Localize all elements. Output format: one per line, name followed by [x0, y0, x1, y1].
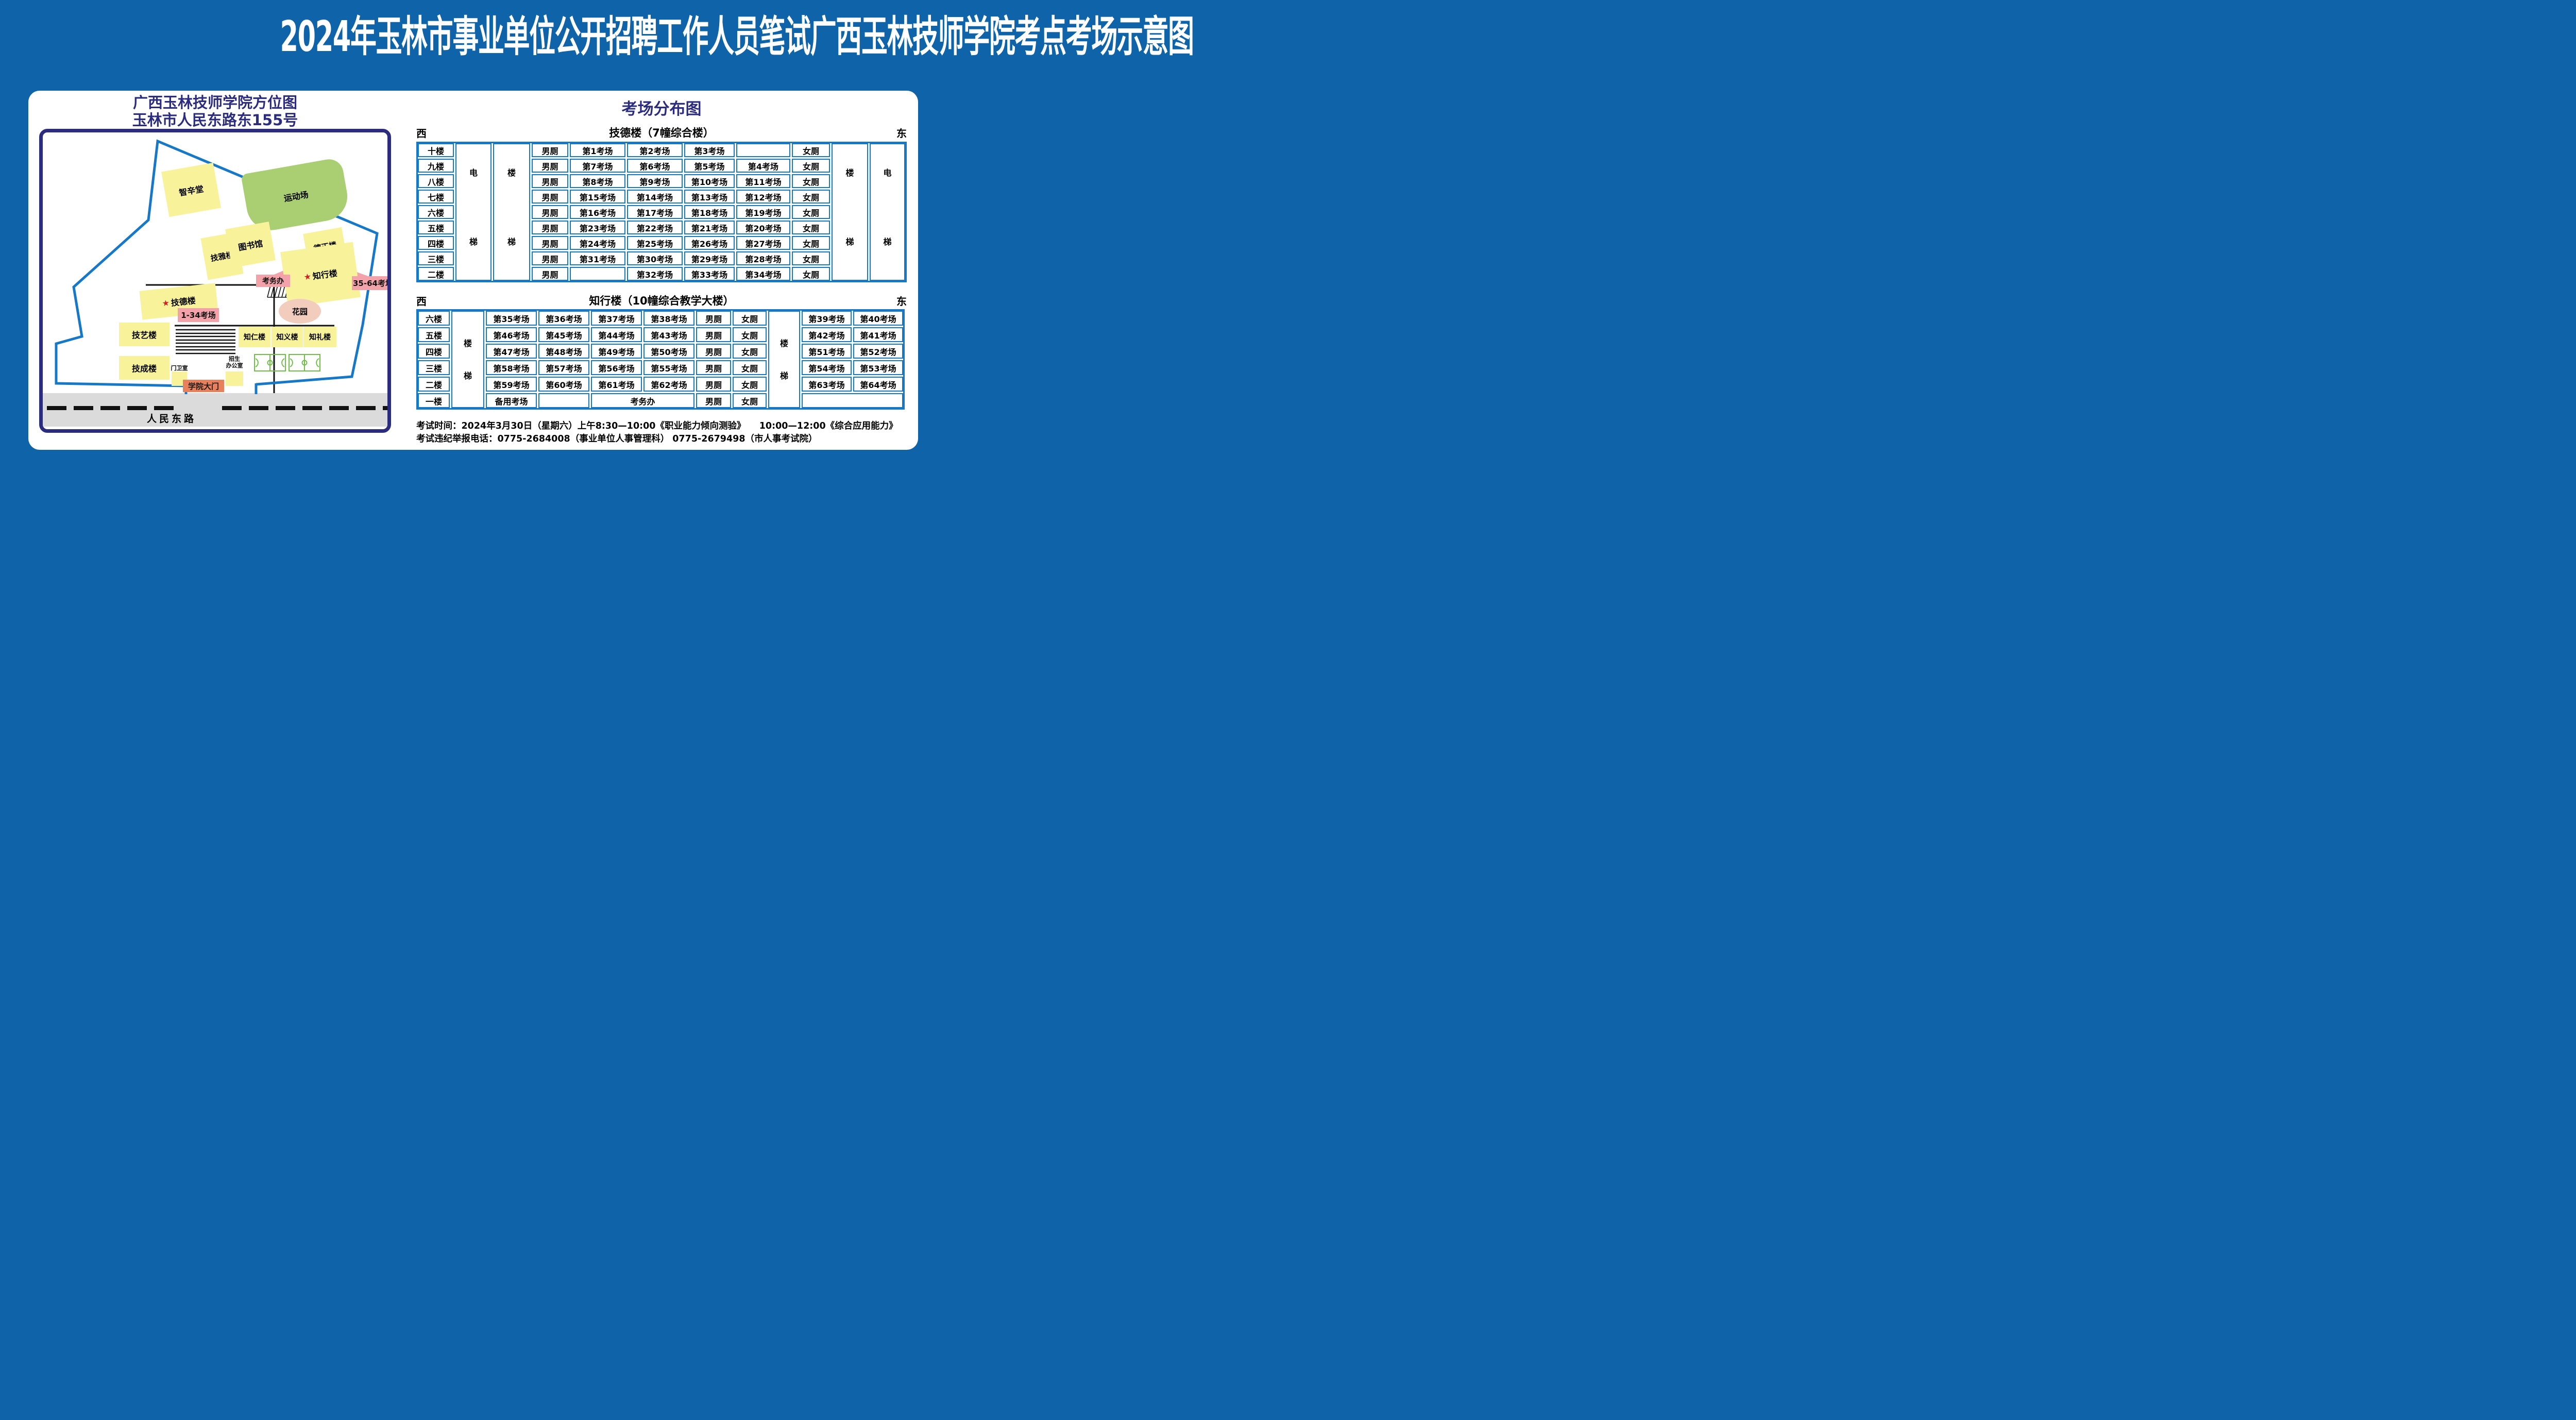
room-cell: 第59考场 [486, 377, 537, 392]
distribution-title: 考场分布图 [416, 96, 907, 119]
room-cell: 第21考场 [684, 221, 735, 234]
room-cell: 第61考场 [591, 377, 642, 392]
female-toilet: 女厕 [792, 174, 830, 188]
map-title: 广西玉林技师学院方位图 玉林市人民东路东155号 [39, 94, 391, 129]
campus-map: 智辛堂 运动场 技雅楼 图书馆 德正楼 ★ 知行楼 ★ 技德楼 花园 技艺楼 知… [39, 129, 391, 433]
building-tushuguan: 图书馆 [225, 222, 276, 268]
room-cell: 第46考场 [486, 327, 537, 342]
room-cell: 第11考场 [736, 174, 790, 188]
west-label: 西 [416, 125, 427, 140]
floor-label: 一楼 [418, 393, 450, 408]
room-cell: 第57考场 [538, 360, 589, 375]
room-cell: 第23考场 [570, 221, 625, 234]
room-cell: 第13考场 [684, 190, 735, 204]
exam-time-note: 考试时间：2024年3月30日（星期六）上午8:30—10:00《职业能力倾向测… [416, 419, 937, 432]
female-toilet: 女厕 [792, 267, 830, 281]
room-cell: 第45考场 [538, 327, 589, 342]
building-zhiyilou: 知义楼 [272, 327, 303, 347]
callout-rooms-35-64: 35-64考场 [352, 276, 391, 290]
room-cell: 第60考场 [538, 377, 589, 392]
garden: 花园 [279, 299, 321, 324]
room-cell: 第2考场 [627, 143, 683, 157]
empty-cell [570, 267, 625, 281]
floor-label: 四楼 [418, 236, 454, 250]
table1-jidelou: 十楼男厕第1考场第2考场第3考场女厕九楼男厕第7考场第6考场第5考场第4考场女厕… [416, 142, 907, 282]
east-stairs: 楼梯 [832, 143, 868, 281]
building-zhixinglou: ★ 知行楼 [280, 242, 361, 308]
female-toilet: 女厕 [733, 377, 767, 392]
male-toilet: 男厕 [696, 311, 731, 326]
male-toilet: 男厕 [532, 236, 568, 250]
east-stairs: 楼梯 [768, 311, 800, 408]
floor-label: 八楼 [418, 174, 454, 188]
room-cell: 第56考场 [591, 360, 642, 375]
female-toilet: 女厕 [792, 143, 830, 157]
east-elevator-char-bottom: 梯 [871, 235, 904, 247]
room-cell: 第1考场 [570, 143, 625, 157]
east-label: 东 [896, 125, 907, 140]
room-cell: 第53考场 [853, 360, 903, 375]
female-toilet: 女厕 [792, 251, 830, 265]
backup-room-cell: 备用考场 [486, 393, 537, 408]
admissions-office-box [226, 371, 243, 386]
room-cell: 第43考场 [643, 327, 694, 342]
male-toilet: 男厕 [532, 143, 568, 157]
room-cell: 第51考场 [802, 344, 852, 359]
male-toilet: 男厕 [532, 174, 568, 188]
table2-header: 西 知行楼（10幢综合教学大楼） 东 [416, 293, 907, 308]
female-toilet: 女厕 [792, 159, 830, 173]
building-zhirenlou: 知仁楼 [239, 327, 270, 347]
floor-label: 四楼 [418, 344, 450, 359]
room-cell: 第36考场 [538, 311, 589, 326]
west-elevator-char-top: 电 [456, 166, 490, 178]
room-cell: 第37考场 [591, 311, 642, 326]
report-phone-note: 考试违纪举报电话：0775-2684008（事业单位人事管理科） 0775-26… [416, 432, 937, 445]
female-toilet: 女厕 [792, 236, 830, 250]
female-toilet: 女厕 [733, 327, 767, 342]
floor-label: 六楼 [418, 205, 454, 219]
college-gate: 学院大门 [183, 380, 224, 392]
star-icon: ★ [303, 271, 312, 282]
room-cell: 第31考场 [570, 251, 625, 265]
floor-label: 三楼 [418, 360, 450, 375]
room-cell: 第55考场 [643, 360, 694, 375]
west-stairs-char-top: 楼 [452, 336, 483, 349]
room-cell: 第63考场 [802, 377, 852, 392]
room-cell: 第48考场 [538, 344, 589, 359]
room-cell: 第44考场 [591, 327, 642, 342]
room-cell: 第54考场 [802, 360, 852, 375]
room-cell: 第7考场 [570, 159, 625, 173]
east-stairs-char-bottom: 梯 [833, 235, 867, 247]
room-cell: 第19考场 [736, 205, 790, 219]
room-cell: 第40考场 [853, 311, 903, 326]
room-cell: 第16考场 [570, 205, 625, 219]
building-jiyilou: 技艺楼 [119, 323, 170, 346]
admissions-office-label: 招生办公室 [218, 356, 251, 369]
male-toilet: 男厕 [532, 267, 568, 281]
room-cell: 第4考场 [736, 159, 790, 173]
empty-cell [802, 393, 903, 408]
floor-label: 五楼 [418, 221, 454, 234]
room-cell: 第58考场 [486, 360, 537, 375]
room-cell: 第10考场 [684, 174, 735, 188]
east-label: 东 [896, 293, 907, 308]
male-toilet: 男厕 [532, 251, 568, 265]
room-cell: 第47考场 [486, 344, 537, 359]
male-toilet: 男厕 [532, 205, 568, 219]
floor-label: 六楼 [418, 311, 450, 326]
room-cell: 第17考场 [627, 205, 683, 219]
floor-label: 二楼 [418, 267, 454, 281]
room-cell: 第9考场 [627, 174, 683, 188]
road-label: 人民东路 [130, 411, 213, 425]
room-cell: 第18考场 [684, 205, 735, 219]
male-toilet: 男厕 [696, 327, 731, 342]
room-cell: 第27考场 [736, 236, 790, 250]
male-toilet: 男厕 [696, 344, 731, 359]
floor-label: 二楼 [418, 377, 450, 392]
west-elevator: 电梯 [455, 143, 492, 281]
table2-building-title: 知行楼（10幢综合教学大楼） [427, 293, 896, 308]
female-toilet: 女厕 [792, 190, 830, 204]
west-stairs: 楼梯 [493, 143, 530, 281]
floor-label: 三楼 [418, 251, 454, 265]
east-elevator-char-top: 电 [871, 166, 904, 178]
room-cell: 第38考场 [643, 311, 694, 326]
west-stairs: 楼梯 [451, 311, 484, 408]
floor-label: 五楼 [418, 327, 450, 342]
callout-rooms-1-34: 1-34考场 [178, 308, 219, 322]
room-cell: 第24考场 [570, 236, 625, 250]
room-cell: 第41考场 [853, 327, 903, 342]
male-toilet: 男厕 [532, 159, 568, 173]
room-cell: 第32考场 [627, 267, 683, 281]
building-jichenglou: 技成楼 [119, 356, 170, 380]
star-icon: ★ [161, 297, 170, 308]
room-cell: 第14考场 [627, 190, 683, 204]
room-cell: 第39考场 [802, 311, 852, 326]
building-zhixintang: 智辛堂 [161, 163, 221, 217]
exam-office-cell: 考务办 [591, 393, 694, 408]
female-toilet: 女厕 [792, 221, 830, 234]
room-cell: 第28考场 [736, 251, 790, 265]
room-cell: 第34考场 [736, 267, 790, 281]
table1-header: 西 技德楼（7幢综合楼） 东 [416, 125, 907, 140]
steps-lines [176, 330, 235, 353]
west-elevator-char-bottom: 梯 [456, 235, 490, 247]
building-zhililou: 知礼楼 [303, 327, 336, 347]
map-title-line2: 玉林市人民东路东155号 [39, 111, 391, 129]
room-cell: 第6考场 [627, 159, 683, 173]
male-toilet: 男厕 [696, 393, 731, 408]
male-toilet: 男厕 [532, 221, 568, 234]
west-stairs-char-top: 楼 [494, 166, 529, 178]
page-title: 2024年玉林市事业单位公开招聘工作人员笔试广西玉林技师学院考点考场示意图 [0, 2, 946, 63]
room-cell: 第8考场 [570, 174, 625, 188]
poster: { "page_title": "2024年玉林市事业单位公开招聘工作人员笔试广… [0, 0, 946, 474]
room-cell: 第62考场 [643, 377, 694, 392]
room-cell: 第30考场 [627, 251, 683, 265]
floor-label: 九楼 [418, 159, 454, 173]
room-cell: 第42考场 [802, 327, 852, 342]
room-cell: 第5考场 [684, 159, 735, 173]
floor-label: 七楼 [418, 190, 454, 204]
male-toilet: 男厕 [696, 377, 731, 392]
gatehouse-label: 门卫室 [166, 364, 192, 372]
content-panel: 广西玉林技师学院方位图 玉林市人民东路东155号 [28, 91, 918, 450]
west-stairs-char-bottom: 梯 [494, 235, 529, 247]
female-toilet: 女厕 [733, 311, 767, 326]
room-cell: 第22考场 [627, 221, 683, 234]
east-stairs-char-bottom: 梯 [769, 369, 799, 381]
east-stairs-char-top: 楼 [769, 336, 799, 349]
east-stairs-char-top: 楼 [833, 166, 867, 178]
female-toilet: 女厕 [733, 393, 767, 408]
female-toilet: 女厕 [733, 360, 767, 375]
west-label: 西 [416, 293, 427, 308]
room-cell: 第29考场 [684, 251, 735, 265]
table1-building-title: 技德楼（7幢综合楼） [427, 125, 896, 140]
room-cell: 第20考场 [736, 221, 790, 234]
east-elevator: 电梯 [870, 143, 905, 281]
room-cell: 第15考场 [570, 190, 625, 204]
male-toilet: 男厕 [696, 360, 731, 375]
west-stairs-char-bottom: 梯 [452, 369, 483, 381]
floor-label: 十楼 [418, 143, 454, 157]
basketball-courts [255, 354, 320, 371]
room-cell: 第50考场 [643, 344, 694, 359]
empty-cell [538, 393, 589, 408]
table2-zhixinglou: 六楼第35考场第36考场第37考场第38考场男厕女厕第39考场第40考场五楼第4… [416, 309, 905, 410]
map-title-line1: 广西玉林技师学院方位图 [39, 94, 391, 111]
room-cell: 第25考场 [627, 236, 683, 250]
room-cell: 第33考场 [684, 267, 735, 281]
male-toilet: 男厕 [532, 190, 568, 204]
room-cell: 第3考场 [684, 143, 735, 157]
empty-cell [736, 143, 790, 157]
room-cell: 第35考场 [486, 311, 537, 326]
room-cell: 第49考场 [591, 344, 642, 359]
female-toilet: 女厕 [733, 344, 767, 359]
room-cell: 第12考场 [736, 190, 790, 204]
room-cell: 第26考场 [684, 236, 735, 250]
callout-exam-office: 考务办 [256, 275, 290, 287]
female-toilet: 女厕 [792, 205, 830, 219]
room-cell: 第52考场 [853, 344, 903, 359]
room-cell: 第64考场 [853, 377, 903, 392]
